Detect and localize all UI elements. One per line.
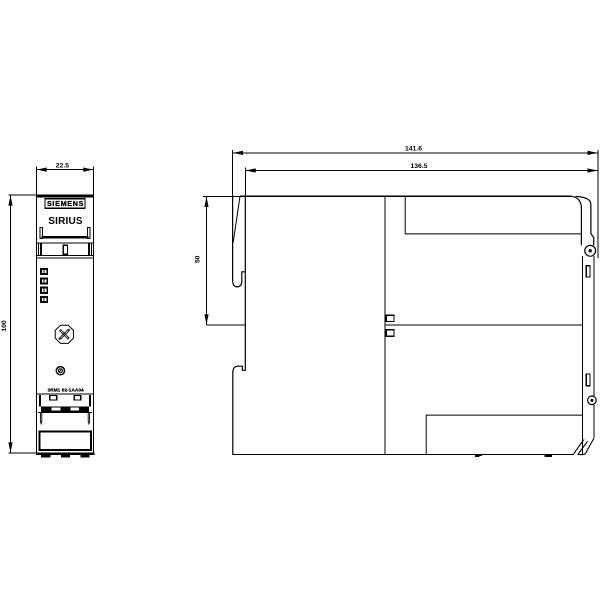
svg-text:141.6: 141.6	[405, 146, 422, 153]
svg-text:3RM1 02-1AA04: 3RM1 02-1AA04	[48, 388, 84, 393]
svg-text:50: 50	[195, 255, 202, 263]
svg-text:SIEMENS: SIEMENS	[47, 199, 84, 208]
svg-text:SIRIUS: SIRIUS	[48, 216, 83, 227]
svg-text:100: 100	[1, 320, 8, 332]
svg-text:136.5: 136.5	[410, 163, 427, 170]
svg-text:22.5: 22.5	[56, 163, 69, 170]
